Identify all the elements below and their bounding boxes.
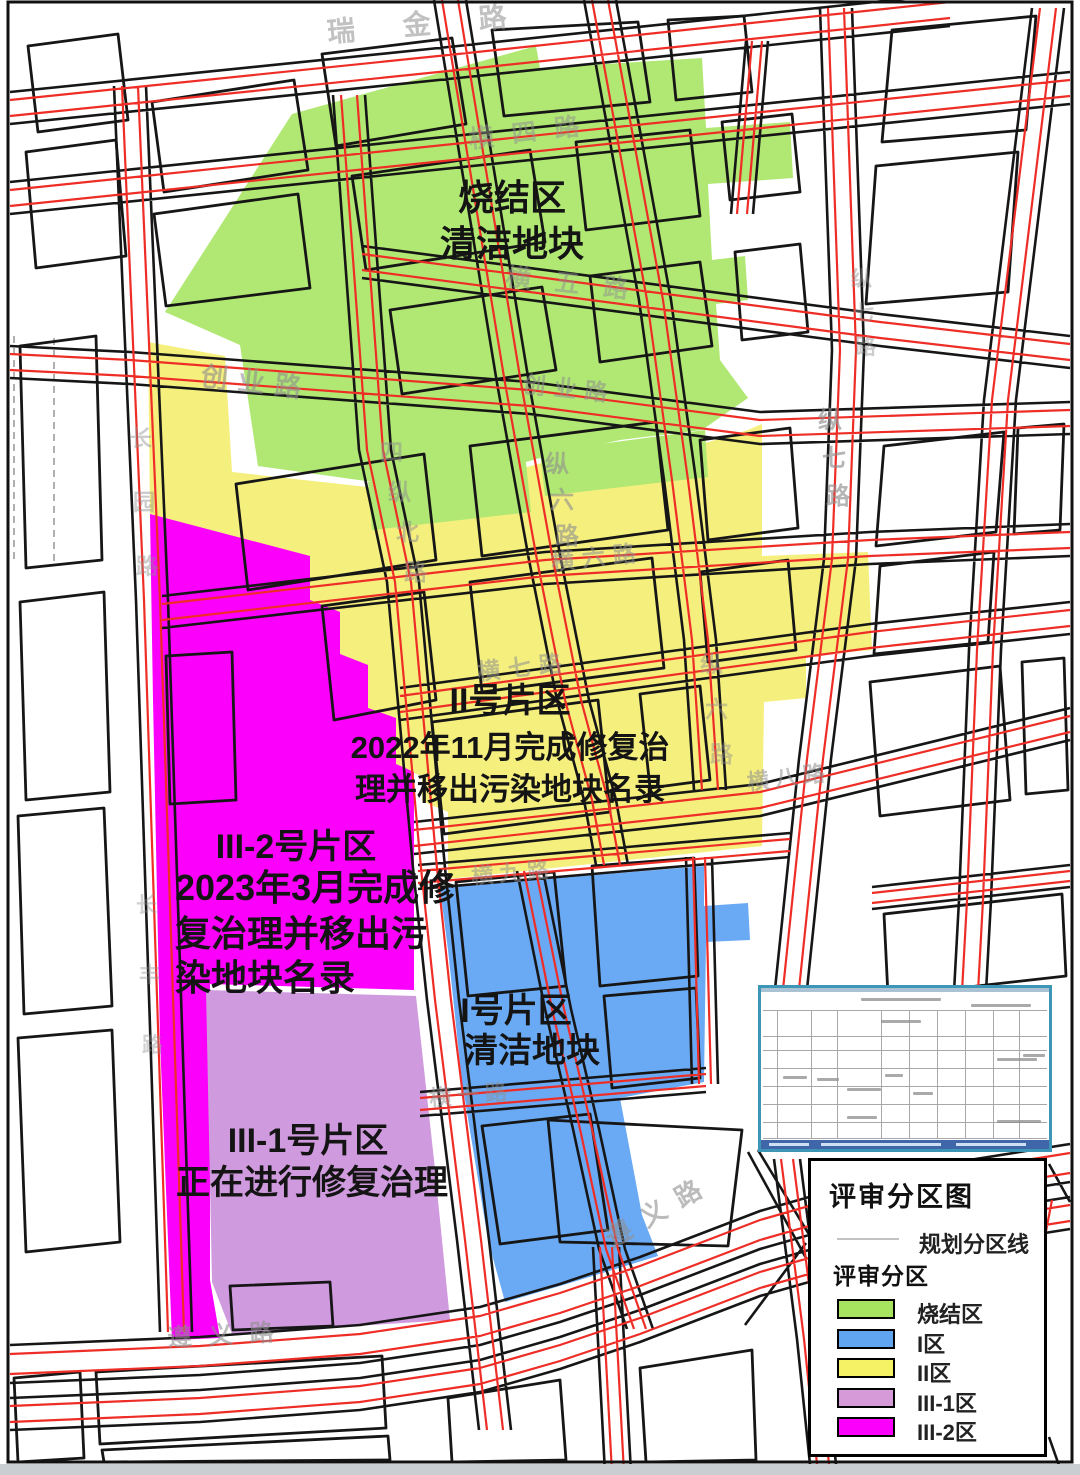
road-label-left_b: 丰	[139, 963, 160, 987]
legend-item-zone1: I区	[837, 1329, 1042, 1353]
legend-swatch-zone3_1	[837, 1388, 895, 1408]
legend-item-label-zone3_1: III-1区	[917, 1386, 977, 1418]
parcel-block	[18, 1030, 120, 1252]
parcel-block	[884, 894, 1066, 996]
road-label-sizongbei: 北	[396, 519, 419, 545]
legend-swatch-zone3_2	[837, 1417, 895, 1437]
zone-label-zone2-line3: 理并移出污染地块名录	[355, 772, 665, 807]
road-label-sizongbei: 四	[380, 439, 403, 465]
road-label-zong6b: 路	[710, 741, 734, 767]
zone-label-zone3_2-line3: 复治理并移出污	[175, 913, 427, 954]
parcel-block	[640, 1350, 756, 1462]
road-label-sizongbei: 纵	[388, 479, 411, 505]
zone-label-zone3_1-line2: 正在进行修复治理	[176, 1164, 448, 1202]
road-label-zong7_top: 七	[853, 302, 874, 325]
inset-header-strip	[761, 988, 1049, 992]
road-label-zong6: 六	[550, 487, 574, 514]
legend-item-zone3_2: III-2区	[837, 1417, 1042, 1441]
legend-item-label-sinter: 烧结区	[917, 1297, 983, 1329]
road-label-zong7_top: 纵	[851, 268, 872, 291]
road-label-zong6b: 六	[705, 696, 728, 722]
zone-label-zone2-line2: 2022年11月完成修复治	[351, 730, 670, 765]
road-label-left_a: 园	[133, 490, 155, 515]
road-label-left_a: 长	[130, 426, 153, 451]
zone-label-zone3_2-line2: 2023年3月完成修	[175, 867, 456, 908]
zone-label-zone1-line2: 清洁地块	[464, 1032, 600, 1070]
road-label-left_a: 路	[136, 554, 159, 579]
data-table-inset	[758, 985, 1052, 1152]
legend-item-label-zone1: I区	[917, 1327, 945, 1359]
road-label-zong7: 七	[822, 445, 846, 472]
planning-line-sample	[837, 1238, 899, 1240]
zone-label-sinter-line1: 烧结区	[458, 177, 566, 218]
parcel-block	[20, 592, 110, 800]
window-bottom-strip	[0, 1464, 1080, 1475]
road-label-zong6: 纵	[545, 451, 569, 478]
zone-label-zone1-line1: I号片区	[460, 992, 571, 1030]
legend-swatch-sinter	[837, 1299, 895, 1319]
map-legend: 评审分区图 规划分区线 评审分区 烧结区I区II区III-1区III-2区	[808, 1158, 1047, 1457]
legend-swatch-zone2	[837, 1358, 895, 1378]
legend-item-zone3_1: III-1区	[837, 1388, 1042, 1412]
zone-label-zone3_2-line4: 染地块名录	[175, 957, 355, 998]
parcel-block	[874, 552, 994, 654]
road-label-zong7: 纵	[818, 407, 842, 434]
road-label-zong7: 路	[826, 482, 851, 510]
zone-label-sinter-line2: 清洁地块	[440, 223, 584, 264]
zone-label-zone3_2-line1: III-2号片区	[216, 828, 377, 866]
road-label-zong6b: 纵	[700, 651, 723, 677]
zone-label-zone3_1-line1: III-1号片区	[228, 1122, 389, 1160]
legend-section-label: 评审分区	[833, 1257, 929, 1291]
parcel-block	[102, 1436, 390, 1462]
planning-line-label: 规划分区线	[919, 1227, 1029, 1259]
road-label-sizongbei: 路	[404, 559, 428, 585]
road-label-zong7_top: 路	[855, 335, 877, 359]
road-label-left_b: 路	[142, 1033, 164, 1057]
legend-item-label-zone3_2: III-2区	[917, 1415, 977, 1447]
parcel-block	[18, 808, 112, 1014]
legend-item-sinter: 烧结区	[837, 1299, 1042, 1323]
road-label-left_b: 长	[136, 894, 158, 917]
parcel-block	[1014, 424, 1064, 534]
parcel-block	[14, 1372, 84, 1462]
legend-item-zone2: II区	[837, 1358, 1042, 1382]
legend-title: 评审分区图	[829, 1175, 974, 1214]
parcel-block	[866, 152, 1018, 304]
legend-swatch-zone1	[837, 1329, 895, 1349]
legend-item-label-zone2: II区	[917, 1356, 951, 1388]
zone-label-zone2-line1: II号片区	[450, 682, 571, 720]
zoning-map-page: 瑞金路横四路横五路创业路创业路纵六路四纵北路纵七路纵七路横六路横七路横八路横九路…	[0, 0, 1080, 1475]
inset-footer-bar	[761, 1140, 1049, 1149]
